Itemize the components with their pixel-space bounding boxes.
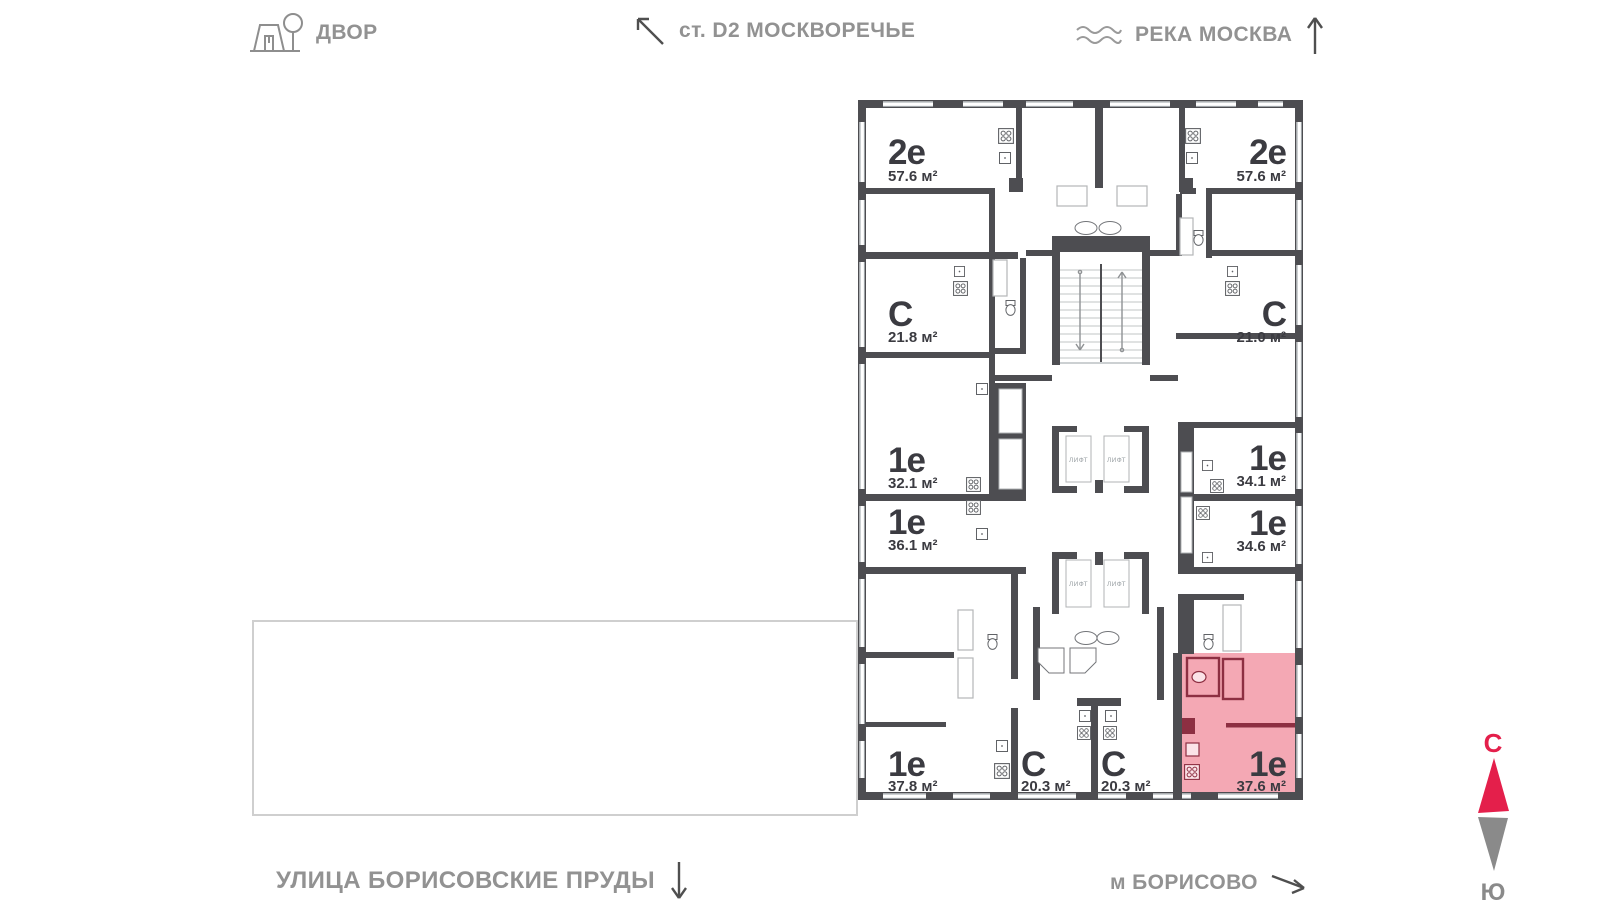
apartment-type: 2е — [1249, 133, 1286, 172]
compass-south-label: Ю — [1481, 879, 1506, 906]
apartment-area: 21.8 м² — [888, 329, 937, 346]
apartment-area: 32.1 м² — [888, 475, 937, 492]
apartment-area: 57.6 м² — [1237, 168, 1286, 185]
apartment-right-1e-34-6[interactable]: 1е 34.6 м² — [1237, 504, 1287, 555]
compass-north-label: С — [1484, 728, 1503, 758]
station-label: ст. D2 МОСКВОРЕЧЬЕ — [679, 19, 915, 43]
arrow-southeast-icon — [1270, 868, 1310, 898]
elevator-label: ЛИФТ — [1069, 581, 1088, 588]
apartment-center-s-20-3-a[interactable]: С 20.3 м² — [1021, 745, 1070, 795]
adjacent-building-outline — [252, 620, 858, 816]
apartment-right-s-21-0[interactable]: С 21.0 м² — [1237, 295, 1287, 346]
apartment-area: 37.6 м² — [1237, 778, 1286, 795]
apartment-area: 21.0 м² — [1237, 329, 1286, 346]
station-annotation: ст. D2 МОСКВОРЕЧЬЕ — [633, 14, 915, 48]
apartment-center-s-20-3-b[interactable]: С 20.3 м² — [1101, 745, 1150, 795]
apartment-area: 34.1 м² — [1237, 473, 1286, 490]
elevators: ЛИФТ ЛИФТ ЛИФТ ЛИФТ — [1066, 436, 1129, 607]
apartment-area: 57.6 м² — [888, 168, 937, 185]
metro-annotation: м БОРИСОВО — [1110, 868, 1310, 898]
apartment-right-2e[interactable]: 2е 57.6 м² — [1237, 133, 1287, 185]
shafts — [999, 389, 1192, 553]
apartment-area: 34.6 м² — [1237, 538, 1286, 555]
apartment-type: 2е — [888, 133, 925, 172]
arrow-northwest-icon — [633, 14, 667, 48]
apartment-area: 20.3 м² — [1101, 778, 1150, 795]
apartment-area: 20.3 м² — [1021, 778, 1070, 795]
yard-icon — [248, 10, 304, 56]
arrow-up-icon — [1304, 14, 1326, 56]
floor-plan-page: ДВОР ст. D2 МОСКВОРЕЧЬЕ РЕКА МОСКВА — [0, 0, 1600, 920]
metro-label: м БОРИСОВО — [1110, 871, 1258, 895]
river-label: РЕКА МОСКВА — [1135, 23, 1292, 47]
compass: С Ю — [1452, 710, 1542, 910]
elevator-label: ЛИФТ — [1107, 581, 1126, 588]
staircase — [1060, 264, 1142, 363]
arrow-down-icon — [667, 860, 691, 902]
compass-needle-south — [1478, 817, 1508, 871]
compass-needle-north — [1478, 758, 1509, 813]
apartment-left-1e-32-1[interactable]: 1е 32.1 м² — [888, 441, 937, 492]
yard-annotation: ДВОР — [248, 10, 378, 56]
apartment-left-1e-36-1[interactable]: 1е 36.1 м² — [888, 503, 937, 554]
street-annotation: УЛИЦА БОРИСОВСКИЕ ПРУДЫ — [276, 860, 691, 902]
apartment-area: 36.1 м² — [888, 537, 937, 554]
street-label: УЛИЦА БОРИСОВСКИЕ ПРУДЫ — [276, 867, 655, 895]
yard-label: ДВОР — [316, 21, 378, 45]
apartment-area: 37.8 м² — [888, 778, 937, 795]
elevator-label: ЛИФТ — [1069, 457, 1088, 464]
apartment-left-s-21-8[interactable]: С 21.8 м² — [888, 295, 937, 346]
elevator-label: ЛИФТ — [1107, 457, 1126, 464]
river-annotation: РЕКА МОСКВА — [1075, 14, 1326, 56]
floor-plan: ЛИФТ ЛИФТ ЛИФТ ЛИФТ — [858, 100, 1303, 800]
river-waves-icon — [1075, 20, 1123, 50]
apartment-left-1e-37-8[interactable]: 1е 37.8 м² — [888, 745, 937, 795]
apartment-right-1e-34-1[interactable]: 1е 34.1 м² — [1237, 439, 1287, 490]
apartment-left-2e[interactable]: 2е 57.6 м² — [888, 133, 937, 185]
